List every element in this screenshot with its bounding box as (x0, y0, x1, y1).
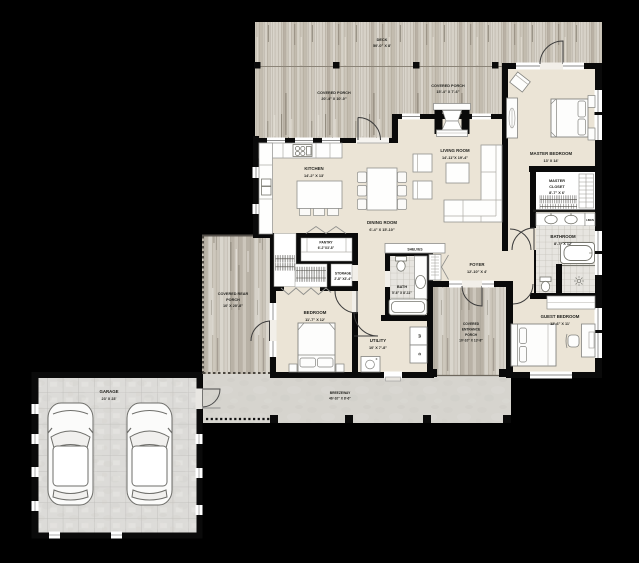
svg-text:8'-7" X 6': 8'-7" X 6' (549, 191, 565, 195)
svg-text:DECK: DECK (377, 38, 388, 42)
svg-text:MASTER: MASTER (549, 179, 565, 183)
svg-text:GUEST BEDROOM: GUEST BEDROOM (541, 314, 580, 319)
svg-text:2'-8" X3'-4": 2'-8" X3'-4" (334, 277, 352, 281)
svg-text:PORCH: PORCH (465, 333, 478, 337)
svg-text:6'-4" X 15'-10": 6'-4" X 15'-10" (369, 228, 394, 232)
svg-text:COVERED PORCH: COVERED PORCH (431, 84, 465, 88)
svg-text:SHELVES: SHELVES (407, 248, 423, 252)
svg-text:23' X 23': 23' X 23' (102, 397, 117, 401)
svg-text:8'-7" X 12': 8'-7" X 12' (554, 242, 572, 246)
svg-text:14'-2" X 13': 14'-2" X 13' (304, 174, 324, 178)
svg-text:UTILITY: UTILITY (370, 338, 387, 343)
svg-text:CLOSET: CLOSET (549, 185, 565, 189)
svg-text:ENTRANCE: ENTRANCE (462, 328, 481, 332)
svg-text:12'-10" X 4': 12'-10" X 4' (467, 270, 487, 274)
svg-text:W: W (418, 334, 422, 338)
svg-text:PANTRY: PANTRY (319, 241, 333, 245)
svg-text:COVERED PORCH: COVERED PORCH (317, 91, 351, 95)
svg-text:PORCH: PORCH (226, 298, 240, 302)
svg-text:15'-4" X 7'-6": 15'-4" X 7'-6" (436, 90, 459, 94)
svg-text:LIVING ROOM: LIVING ROOM (440, 148, 470, 153)
svg-text:STORAGE: STORAGE (335, 272, 352, 276)
svg-text:COVERED: COVERED (463, 322, 480, 326)
svg-text:COVERED REAR: COVERED REAR (218, 292, 249, 296)
svg-text:10'-10" X 13'-8": 10'-10" X 13'-8" (459, 339, 483, 343)
svg-text:FOYER: FOYER (470, 262, 486, 267)
svg-text:5'-6" X 8'-11": 5'-6" X 8'-11" (392, 291, 412, 295)
svg-text:KITCHEN: KITCHEN (304, 166, 323, 171)
svg-text:11'-7" X 12': 11'-7" X 12' (305, 318, 325, 322)
svg-text:14'-11"X 19'-4": 14'-11"X 19'-4" (442, 156, 468, 160)
svg-text:GARAGE: GARAGE (99, 389, 118, 394)
svg-text:BEDROOM: BEDROOM (304, 310, 327, 315)
svg-text:DINING ROOM: DINING ROOM (367, 220, 397, 225)
svg-text:LINEN: LINEN (586, 218, 594, 222)
svg-text:12'-6" X 11': 12'-6" X 11' (550, 322, 570, 326)
svg-text:BATHROOM: BATHROOM (550, 234, 576, 239)
svg-text:20'-4" X 10'-0": 20'-4" X 10'-0" (321, 97, 346, 101)
svg-text:6'-2"X3'-8": 6'-2"X3'-8" (318, 246, 335, 250)
svg-text:10' X 20'-8": 10' X 20'-8" (223, 304, 243, 308)
svg-text:MASTER BEDROOM: MASTER BEDROOM (530, 151, 573, 156)
svg-text:10' X 7'-8": 10' X 7'-8" (369, 346, 387, 350)
svg-text:50'-0" X 8': 50'-0" X 8' (373, 44, 391, 48)
svg-text:D: D (418, 352, 422, 355)
svg-text:13' X 14': 13' X 14' (544, 159, 559, 163)
svg-text:46'-10" X 8'-6": 46'-10" X 8'-6" (329, 397, 351, 401)
svg-text:BATH: BATH (397, 285, 408, 289)
svg-text:BREEZEWAY: BREEZEWAY (330, 391, 351, 395)
